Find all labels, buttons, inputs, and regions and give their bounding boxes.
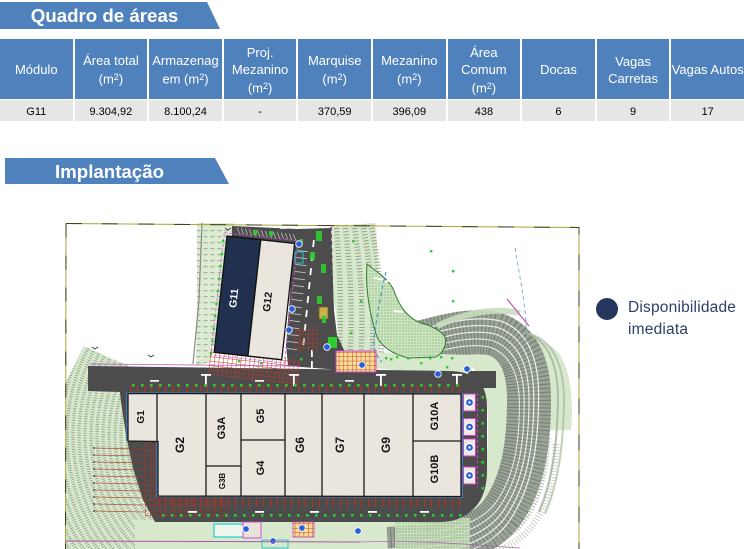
svg-text:G2: G2 [173,437,187,453]
svg-text:G10A: G10A [429,402,441,431]
svg-text:G7: G7 [333,437,347,453]
svg-text:G10B: G10B [429,455,441,484]
svg-text:G6: G6 [293,437,307,453]
svg-text:G5: G5 [255,409,267,424]
svg-text:G3A: G3A [216,417,228,440]
svg-text:G4: G4 [255,460,267,476]
svg-text:G3B: G3B [218,473,227,490]
svg-text:G11: G11 [227,288,241,309]
svg-text:G1: G1 [136,410,147,424]
svg-text:G9: G9 [379,437,393,453]
svg-text:G12: G12 [261,291,275,312]
